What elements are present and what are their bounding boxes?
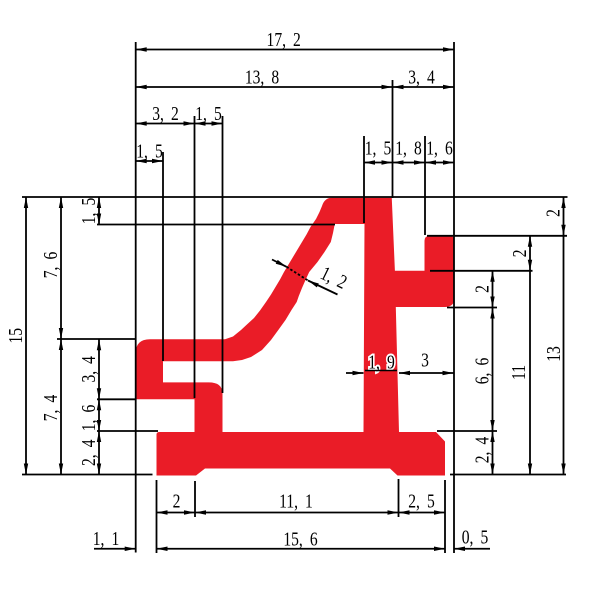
svg-text:6, 6: 6, 6	[471, 358, 493, 385]
svg-text:1, 6: 1, 6	[426, 137, 453, 159]
svg-text:3, 4: 3, 4	[408, 66, 435, 88]
svg-text:11, 1: 11, 1	[279, 490, 313, 512]
svg-text:2, 4: 2, 4	[471, 437, 493, 464]
svg-text:1, 5: 1, 5	[365, 137, 392, 159]
svg-text:1, 9: 1, 9	[368, 351, 395, 373]
svg-text:2: 2	[471, 285, 493, 293]
svg-text:3, 4: 3, 4	[77, 356, 99, 383]
svg-text:13: 13	[542, 346, 564, 362]
svg-text:1, 6: 1, 6	[77, 405, 99, 432]
svg-text:2: 2	[542, 209, 564, 217]
svg-text:1, 8: 1, 8	[395, 137, 422, 159]
svg-text:3: 3	[421, 349, 429, 371]
svg-text:7, 6: 7, 6	[39, 252, 61, 279]
svg-text:13, 8: 13, 8	[245, 66, 279, 88]
svg-text:3, 2: 3, 2	[152, 102, 179, 124]
svg-text:15: 15	[4, 328, 26, 344]
svg-text:2, 5: 2, 5	[408, 490, 435, 512]
svg-text:1, 5: 1, 5	[195, 102, 222, 124]
svg-text:0, 5: 0, 5	[462, 526, 489, 548]
svg-text:17, 2: 17, 2	[267, 28, 301, 50]
svg-text:1, 1: 1, 1	[93, 527, 120, 549]
svg-text:2, 4: 2, 4	[77, 439, 99, 466]
svg-text:11: 11	[507, 365, 529, 380]
svg-text:2: 2	[508, 249, 530, 257]
svg-text:1, 5: 1, 5	[136, 140, 163, 162]
svg-text:7, 4: 7, 4	[39, 395, 61, 422]
svg-text:15, 6: 15, 6	[283, 527, 317, 549]
svg-text:2: 2	[173, 490, 181, 512]
svg-text:1, 5: 1, 5	[77, 198, 99, 225]
